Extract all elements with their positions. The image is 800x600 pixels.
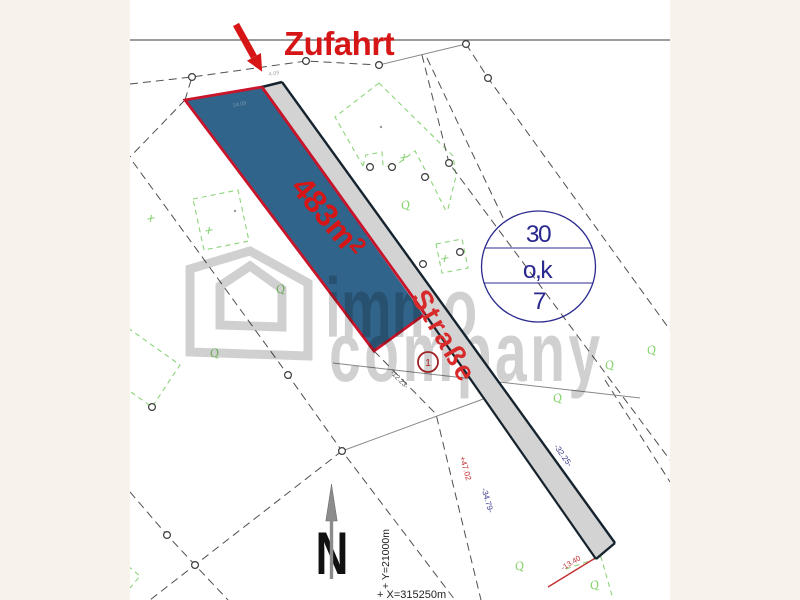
svg-text:+ X=315250m: + X=315250m bbox=[377, 589, 446, 600]
svg-text:1: 1 bbox=[425, 357, 431, 369]
svg-text:+ Y=21000m: + Y=21000m bbox=[380, 529, 392, 589]
svg-text:7: 7 bbox=[533, 288, 546, 315]
svg-text:30: 30 bbox=[526, 221, 551, 248]
svg-text:o,k: o,k bbox=[523, 257, 553, 284]
svg-text:Zufahrt: Zufahrt bbox=[284, 25, 395, 62]
